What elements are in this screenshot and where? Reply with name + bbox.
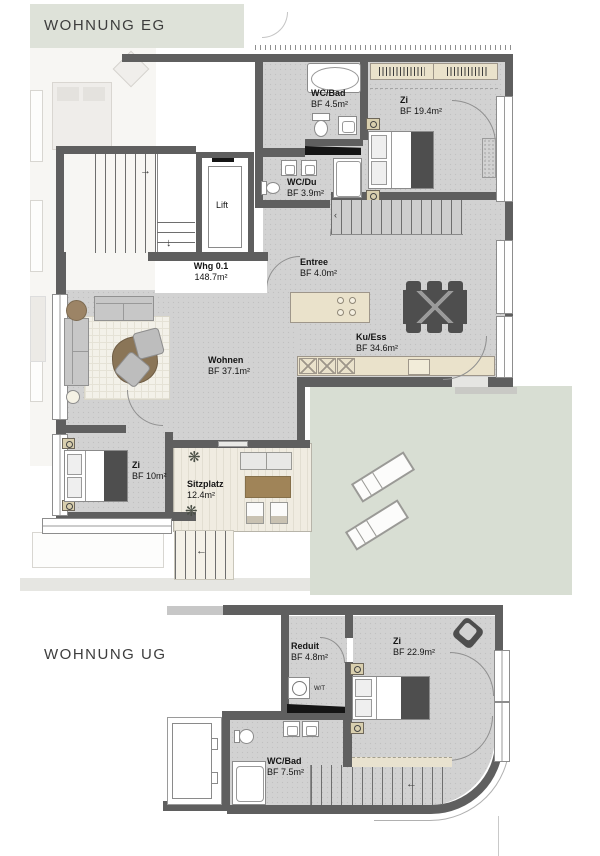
kuess-door-gap (452, 377, 488, 387)
wall-wcdu-top (255, 148, 305, 157)
lift-car-ug (172, 723, 212, 799)
neighbour-window (30, 200, 43, 272)
label-sitzplatz: Sitzplatz12.4m² (187, 479, 224, 501)
wall-reduit-zi-a (345, 615, 353, 638)
label-wcdu: WC/DuBF 3.9m² (287, 177, 324, 199)
dining-chair (448, 323, 463, 333)
neighbour-bed (52, 82, 112, 150)
plant-icon: ❋ (185, 504, 198, 519)
wall-ug-top (223, 605, 503, 615)
terrace-sliding-door (218, 441, 248, 447)
dining-chair (448, 281, 463, 291)
kuess-door-landing (455, 387, 517, 394)
radiator (482, 138, 496, 178)
dining-table (403, 290, 467, 324)
window-kuess-right-b (496, 316, 513, 378)
window-zi10-bottom (42, 518, 172, 534)
label-zi-ug: ZiBF 22.9m² (393, 636, 435, 658)
stair-arrow-up: → (140, 166, 151, 176)
toilet-bowl-icon (266, 182, 280, 194)
dining-chair (427, 323, 442, 333)
neighbour-window (30, 90, 43, 162)
shower (333, 158, 362, 198)
stairs-ug-arrow: ← (406, 779, 417, 789)
dining-chair (427, 281, 442, 291)
side-table-round (66, 300, 87, 321)
wall-whg-top (148, 252, 268, 261)
wcbad-ug-door-arc (465, 722, 467, 724)
bed-zi19 (368, 131, 434, 189)
label-wt: W/T (314, 684, 325, 695)
lift-door-mark (212, 158, 234, 162)
wall-zi10-top (56, 425, 126, 433)
garden-path (20, 578, 310, 591)
bedside-lamp (62, 438, 75, 449)
label-kuess: Ku/EssBF 34.6m² (356, 332, 398, 354)
wall-wcdu-bottom (255, 200, 330, 208)
stairwell-wall (56, 146, 196, 154)
label-wohnen: WohnenBF 37.1m² (208, 355, 250, 377)
wall-neighbour-top (122, 54, 255, 62)
toilet-bowl-icon (239, 729, 254, 744)
sink-icon (283, 721, 300, 737)
bedside-lamp (350, 722, 364, 734)
sofa-top (94, 296, 154, 321)
label-wcbad-ug: WC/BadBF 7.5m² (267, 756, 304, 778)
label-zi10: ZiBF 10m² (132, 460, 167, 482)
wall-ug-bottom (227, 805, 377, 814)
upper-door-arc (262, 12, 288, 38)
wardrobe-doors-dashed (370, 82, 498, 89)
sink-icon (301, 160, 317, 176)
stairwell-stairs-lower (157, 216, 195, 253)
toilet-bowl-icon (314, 120, 328, 137)
wall-eg-top (252, 54, 513, 62)
label-entree: EntreeBF 4.0m² (300, 257, 337, 279)
floorplan-canvas: WOHNUNG EG → ↓ (0, 0, 600, 856)
label-zi19: ZiBF 19.4m² (400, 95, 442, 117)
wall-wohnen-kitchen (297, 378, 305, 448)
stairwell-wall (56, 146, 64, 256)
neighbour-patio (32, 532, 164, 568)
window-zi-ug-b (494, 702, 510, 762)
label-reduit: ReduitBF 4.8m² (291, 641, 328, 663)
bed-zi10 (64, 450, 128, 502)
window-kuess-right-a (496, 240, 513, 314)
wardrobe-zi19 (370, 63, 498, 80)
stairs-ug-wide (352, 767, 452, 805)
wall-ug-left (222, 711, 230, 806)
lawn (310, 386, 572, 595)
whg-label-box: Whg 0.1148.7m² (155, 261, 267, 293)
ceiling-fan-symbol (66, 390, 80, 404)
stairs-ug-narrow (310, 765, 344, 805)
roof-dashed-line (255, 45, 513, 50)
lift-shaft: Lift (196, 152, 254, 262)
terrace-table (245, 476, 291, 498)
window-zi-ug-a (494, 650, 510, 702)
stairs-to-ug-arrow: ‹ (334, 210, 337, 220)
shower-ug (232, 761, 266, 805)
bed-zi-ug (352, 676, 430, 720)
washing-machine (288, 677, 310, 699)
kitchen-island (290, 292, 370, 323)
stairs-to-ug (331, 200, 463, 235)
lift-shaft-ug (167, 717, 222, 805)
sink-icon (281, 160, 297, 176)
plant-icon: ❋ (188, 450, 201, 465)
wall-wcbad-bottom (305, 139, 363, 146)
sofa-left (64, 318, 89, 386)
ug-title: WOHNUNG UG (44, 646, 167, 663)
stair-arrow-down: ↓ (166, 238, 172, 248)
wall-eg-left-upper (255, 54, 263, 200)
terrace-chair (270, 502, 288, 524)
dining-chair (406, 281, 421, 291)
bedside-lamp (350, 663, 364, 675)
label-whg: Whg 0.1148.7m² (155, 261, 267, 283)
sink-icon (302, 721, 319, 737)
wall-stub-light (167, 606, 223, 615)
dining-chair (406, 323, 421, 333)
label-wcbad-eg: WC/BadBF 4.5m² (311, 88, 348, 110)
eg-title: WOHNUNG EG (44, 17, 166, 34)
sink-icon (338, 116, 357, 135)
terrace-steps-arrow: ← (196, 546, 207, 556)
window-zi19-right (496, 96, 513, 202)
stairs-ug-landing (352, 757, 452, 767)
boundary-line (498, 816, 499, 856)
lift-label: Lift (216, 200, 228, 211)
terrace-bench (240, 452, 292, 470)
neighbour-furniture (30, 296, 46, 362)
terrace-chair (246, 502, 264, 524)
bedside-lamp (366, 118, 380, 130)
